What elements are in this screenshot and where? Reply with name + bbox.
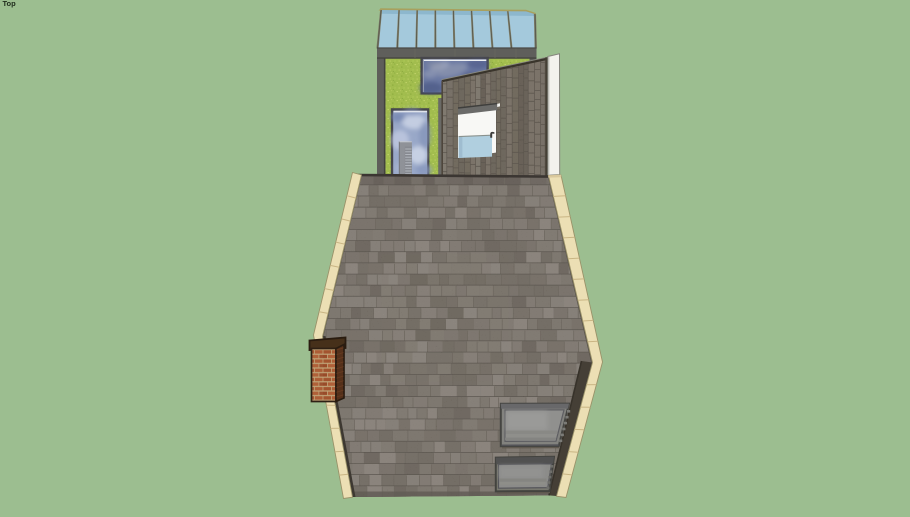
svg-text:Top: Top (3, 0, 17, 8)
